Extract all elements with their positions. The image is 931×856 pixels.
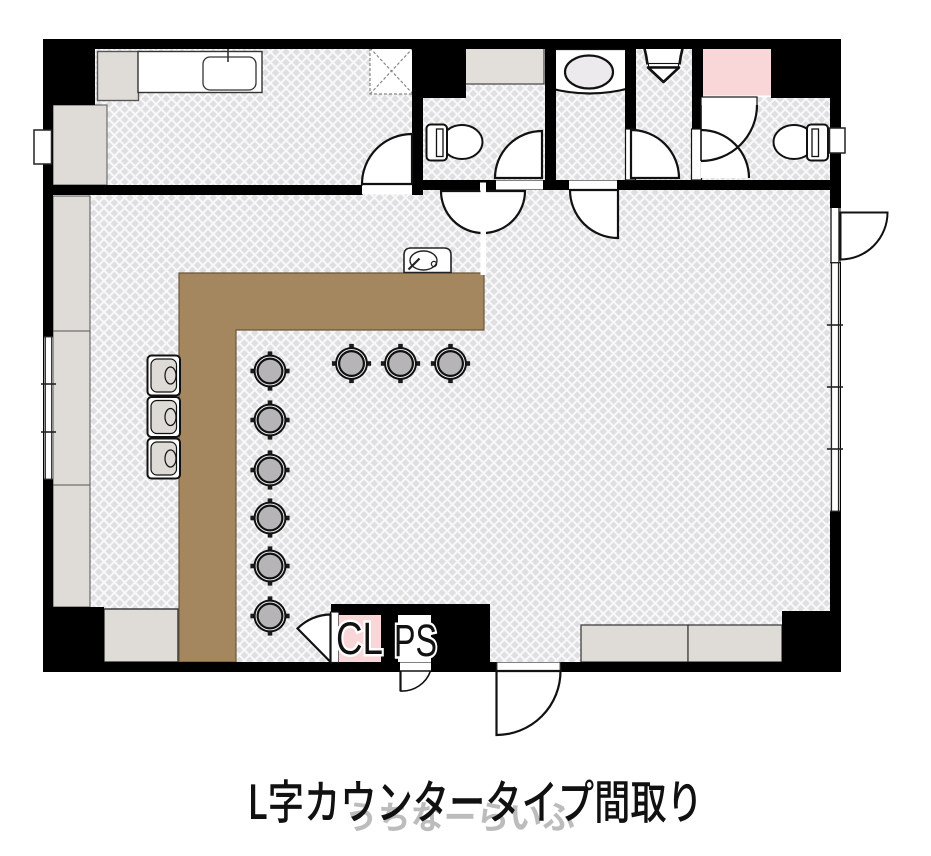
svg-text:PS: PS (394, 615, 437, 666)
svg-text:CL: CL (336, 613, 383, 664)
